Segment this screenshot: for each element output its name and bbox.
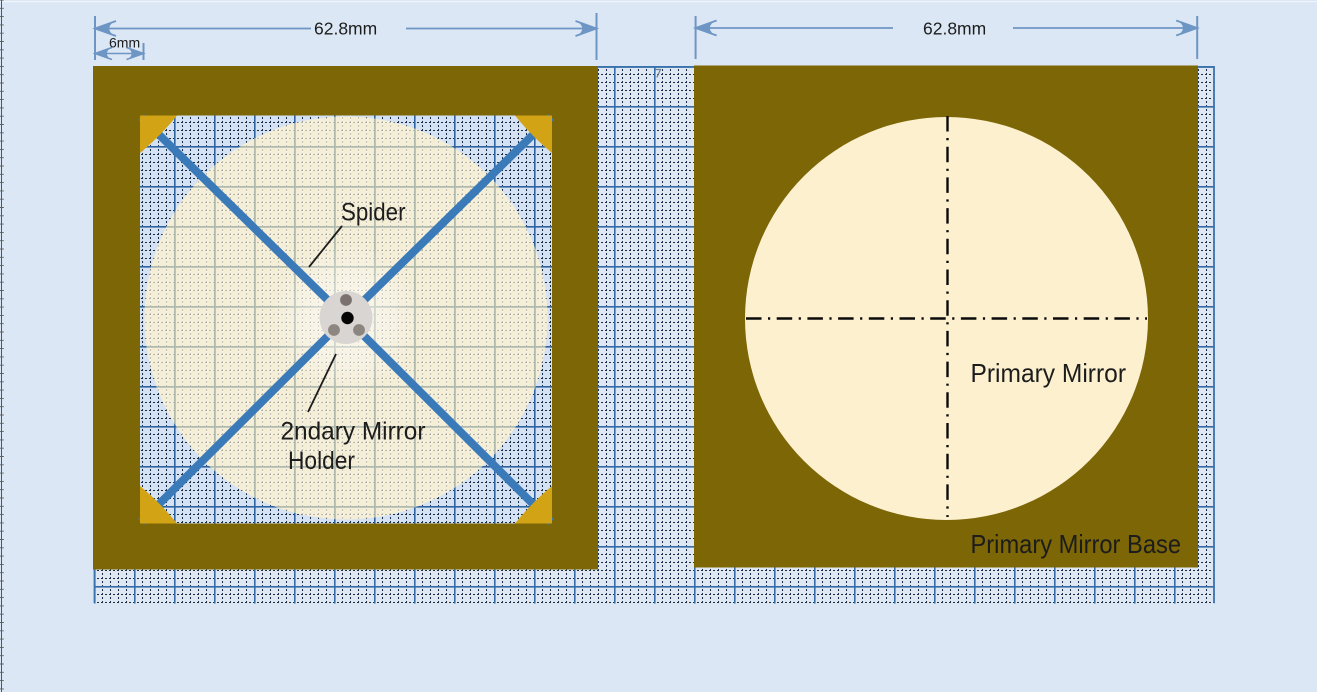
svg-text:Primary Mirror: Primary Mirror: [971, 358, 1127, 388]
svg-text:2ndary Mirror: 2ndary Mirror: [281, 418, 426, 446]
svg-text:62.8mm: 62.8mm: [314, 19, 377, 39]
svg-text:Spider: Spider: [341, 199, 406, 227]
svg-text:Holder: Holder: [288, 447, 355, 475]
svg-text:Primary Mirror Base: Primary Mirror Base: [971, 529, 1182, 559]
svg-text:6mm: 6mm: [109, 35, 140, 51]
svg-text:62.8mm: 62.8mm: [923, 19, 986, 39]
